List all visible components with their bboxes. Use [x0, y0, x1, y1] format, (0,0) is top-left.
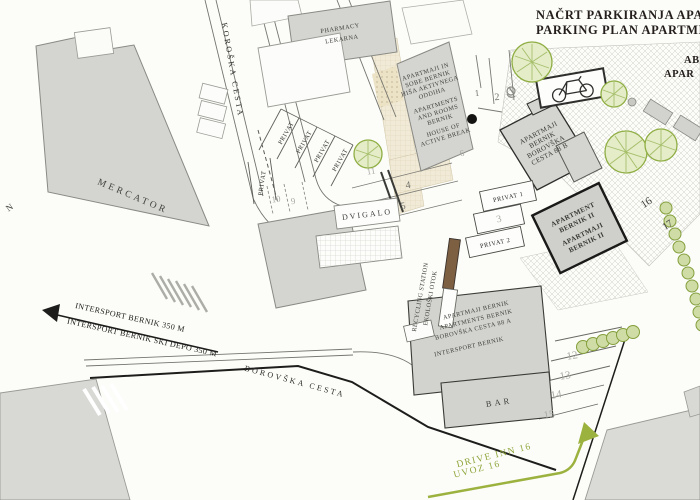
spot-10: 10 [271, 193, 282, 204]
plan-title-en: PARKING PLAN APARTMENTS [536, 23, 700, 37]
tree-icon [645, 129, 677, 161]
tree-icon [605, 131, 647, 173]
tree-icon [512, 42, 552, 82]
building-outline-below-pharmacy [258, 33, 350, 107]
spot-9: 9 [290, 196, 296, 207]
edge-text-fragment: N [4, 201, 15, 213]
site-plan-canvas: NAČRT PARKIRANJA APARTMA PARKING PLAN AP… [0, 0, 700, 500]
recycling-container [443, 238, 461, 289]
corner-label-line2: APAR [664, 69, 694, 80]
crosswalk [152, 273, 207, 312]
bollard [628, 98, 636, 106]
building-bottom-right [585, 408, 700, 500]
parking-plan-map: NAČRT PARKIRANJA APARTMA PARKING PLAN AP… [0, 0, 700, 500]
building-mercator-notch [74, 28, 113, 59]
spot-12: 12 [566, 349, 579, 363]
spot-11: 11 [366, 165, 376, 176]
street-borovska-label: BOROVŠKA CESTA [244, 364, 347, 400]
privat-label: PRIVAT [257, 170, 267, 196]
tree-icon [354, 140, 382, 168]
reference-dot [467, 114, 477, 124]
spot-13: 13 [559, 369, 572, 383]
plot-outline-top [402, 0, 472, 44]
plan-title-sl: NAČRT PARKIRANJA APARTMA [536, 8, 700, 22]
drive-inn-arrow-icon [428, 422, 599, 497]
small-stalls-left-of-road [191, 83, 234, 138]
tree-icon [601, 81, 627, 107]
spot-1: 1 [474, 88, 479, 98]
spot-14: 14 [550, 388, 563, 402]
corner-label-line1: AB [684, 55, 700, 66]
spot-2: 2 [494, 92, 500, 103]
spot-15: 15 [543, 408, 556, 422]
